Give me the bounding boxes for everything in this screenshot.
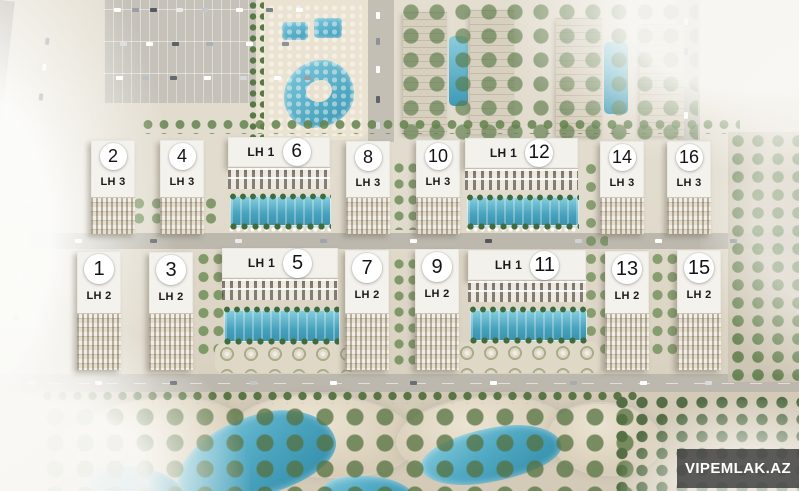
building-roof: LH 1 5 [222,248,338,278]
building-number-badge: 8 [355,144,382,171]
building-type-label: LH 1 [490,146,517,160]
building-number-badge: 3 [156,255,186,285]
building-type-label: LH 3 [100,176,125,188]
building-8[interactable]: 8 LH 3 [346,141,390,234]
building-type-label: LH 3 [609,177,634,189]
watermark: VIPEMLAK.AZ [677,449,799,488]
building-facade [667,197,711,234]
building-number-badge: 11 [530,251,559,280]
building-number-badge: 4 [169,143,196,170]
building-facade [91,197,135,234]
tree-line [140,118,740,134]
building-facade [77,313,121,370]
building-facade [677,313,721,370]
west-access-road [0,0,15,419]
building-facade [345,313,389,370]
building-type-label: LH 3 [355,177,380,189]
building-10[interactable]: 10 LH 3 [416,140,460,234]
building-12[interactable]: LH 1 12 [465,138,578,190]
east-grove [728,132,799,382]
master-plan-aerial-view: 2 LH 3 4 LH 3 LH 1 6 8 LH 3 10 LH 3 LH 1… [0,0,799,491]
building-type-label: LH 2 [354,289,379,301]
palm-row [228,222,331,231]
building-facade [222,278,338,300]
tree-line [40,390,640,404]
building-14[interactable]: 14 LH 3 [600,141,644,234]
building-1[interactable]: 1 LH 2 [77,251,121,370]
building-13[interactable]: 13 LH 2 [605,251,649,370]
building-number-badge: 10 [425,143,452,170]
building-number-badge: 7 [352,253,382,283]
building-type-label: LH 2 [424,288,449,300]
building-type-label: LH 2 [614,290,639,302]
building-type-label: LH 2 [158,291,183,303]
building-facade [228,167,330,189]
building-number-badge: 14 [609,144,636,171]
building-facade [149,313,193,370]
cars [684,8,688,15]
sun-lounger-dots [258,4,362,136]
tree-cluster [392,160,418,230]
building-7[interactable]: 7 LH 2 [345,250,389,370]
parked-cars [104,0,111,4]
building-number-badge: 9 [422,252,452,282]
tree-cluster [650,250,680,360]
building-type-label: LH 1 [495,258,522,272]
building-number-badge: 12 [525,139,553,167]
palm-row [465,193,579,202]
cars [30,239,37,243]
building-number-badge: 6 [283,138,311,166]
building-facade [415,313,459,370]
cars [48,14,53,21]
central-road [30,233,799,249]
building-roof: LH 1 11 [468,250,586,280]
palm-row [222,337,339,346]
building-number-badge: 5 [283,249,312,278]
building-5[interactable]: LH 1 5 [222,248,338,300]
building-2[interactable]: 2 LH 3 [91,140,135,234]
building-facade [468,280,586,302]
building-number-badge: 13 [612,254,642,284]
watermark-text: VIPEMLAK.AZ [685,460,791,477]
palm-row [468,336,587,345]
building-6[interactable]: LH 1 6 [228,137,330,189]
building-number-badge: 2 [100,143,127,170]
building-type-label: LH 3 [425,176,450,188]
palm-scatter [40,404,640,491]
building-11[interactable]: LH 1 11 [468,250,586,302]
palm-row [465,222,579,231]
building-roof: LH 1 6 [228,137,330,167]
building-facade [465,168,578,190]
building-number-badge: 15 [684,253,714,283]
building-type-label: LH 2 [686,289,711,301]
building-facade [416,197,460,234]
building-4[interactable]: 4 LH 3 [160,140,204,234]
building-facade [346,197,390,234]
building-9[interactable]: 9 LH 2 [415,249,459,370]
palm-row [468,305,587,314]
cars [0,381,7,385]
building-number-badge: 16 [676,144,703,171]
building-type-label: LH 3 [676,177,701,189]
building-facade [605,313,649,370]
landscaped-garden [455,342,600,373]
palm-row [222,305,339,314]
building-type-label: LH 3 [169,176,194,188]
building-roof: LH 1 12 [465,138,578,168]
landscaped-garden [215,343,355,373]
building-type-label: LH 2 [86,290,111,302]
cars [376,4,380,11]
building-3[interactable]: 3 LH 2 [149,252,193,370]
building-type-label: LH 1 [247,145,274,159]
building-facade [160,197,204,234]
building-facade [600,197,644,234]
building-number-badge: 1 [84,254,114,284]
palm-row [228,192,331,201]
building-16[interactable]: 16 LH 3 [667,141,711,234]
building-type-label: LH 1 [248,256,275,270]
building-15[interactable]: 15 LH 2 [677,250,721,370]
